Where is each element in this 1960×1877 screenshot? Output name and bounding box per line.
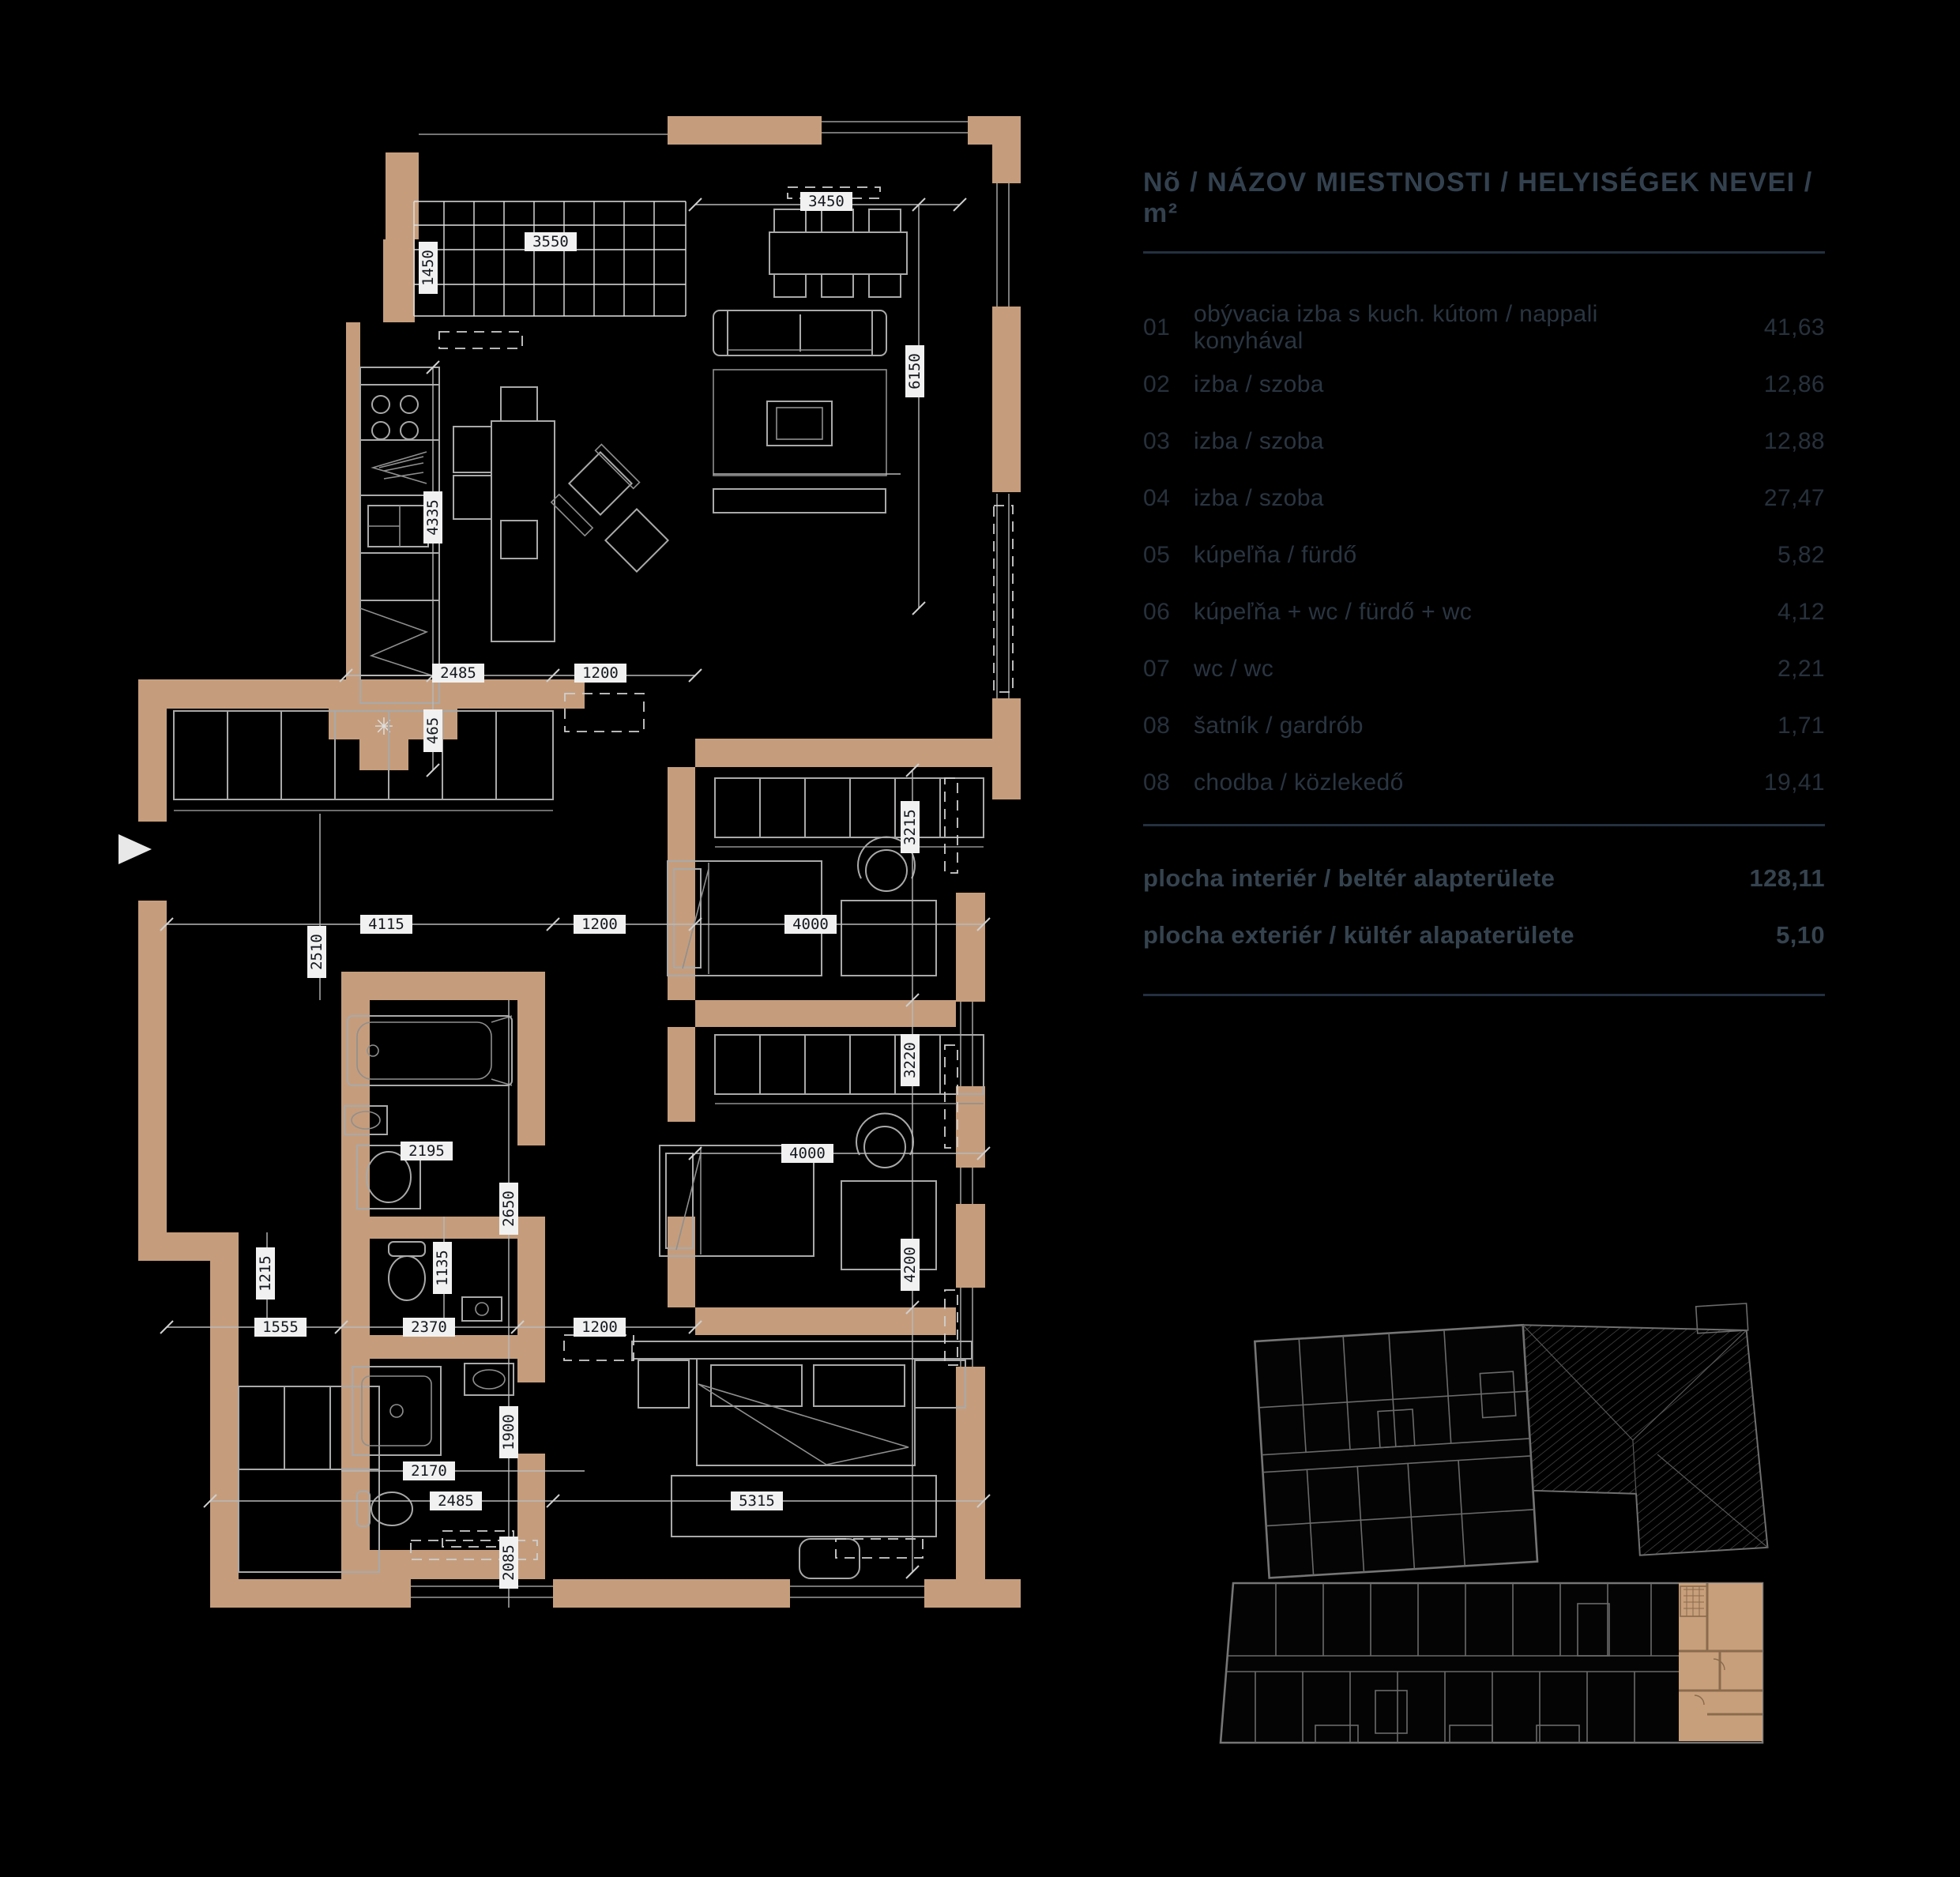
dimension-label: 3550 [532, 233, 569, 250]
dimension-label: 2485 [440, 664, 476, 682]
bathtub-icon [348, 1016, 512, 1085]
dimension-label: 1200 [582, 664, 619, 682]
room-row: 01 obývacia izba s kuch. kútom / nappali… [1143, 299, 1825, 356]
bedroom2 [668, 778, 984, 976]
room-number: 04 [1143, 485, 1194, 512]
room-row: 03 izba / szoba 12,88 [1143, 413, 1825, 470]
room-list-panel: Nõ / NÁZOV MIESTNOSTI / HELYISÉGEK NEVEI… [1143, 167, 1825, 996]
dimension-label: 6150 [906, 353, 924, 389]
entrance-arrow-icon [119, 834, 152, 864]
total-row: plocha exteriér / kültér alapaterülete 5… [1143, 907, 1825, 964]
dimension-label: 2650 [500, 1191, 517, 1227]
french-window [945, 778, 957, 873]
room-row: 06 kúpeľňa + wc / fürdő + wc 4,12 [1143, 584, 1825, 641]
room-name: kúpeľňa + wc / fürdő + wc [1194, 599, 1714, 626]
totals: plocha interiér / beltér alapterülete 12… [1143, 826, 1825, 994]
room-row: 02 izba / szoba 12,86 [1143, 356, 1825, 413]
room-row: 07 wc / wc 2,21 [1143, 641, 1825, 698]
room-row: 08 chodba / közlekedő 19,41 [1143, 754, 1825, 811]
room-row: 05 kúpeľňa / fürdő 5,82 [1143, 527, 1825, 584]
room-number: 06 [1143, 599, 1194, 626]
divider [1143, 994, 1825, 996]
cooktop-icon [372, 396, 418, 439]
room-number: 02 [1143, 371, 1194, 398]
room-area: 4,12 [1714, 599, 1825, 626]
dimension-label: 2510 [308, 934, 325, 970]
room-number: 07 [1143, 656, 1194, 683]
dimension-label: 1555 [262, 1318, 299, 1336]
room-name: izba / szoba [1194, 428, 1714, 455]
panel-title: Nõ / NÁZOV MIESTNOSTI / HELYISÉGEK NEVEI… [1143, 167, 1825, 251]
total-row: plocha interiér / beltér alapterülete 12… [1143, 850, 1825, 907]
desk [841, 901, 936, 976]
total-value: 5,10 [1699, 921, 1825, 950]
room-number: 03 [1143, 428, 1194, 455]
door-threshold [564, 1335, 634, 1360]
room-area: 1,71 [1714, 713, 1825, 739]
desk [672, 1476, 936, 1537]
dimension-label: 4335 [424, 499, 442, 536]
total-label: plocha exteriér / kültér alapaterülete [1143, 921, 1699, 950]
terrace-grid [414, 201, 686, 316]
room-area: 27,47 [1714, 485, 1825, 512]
room-row: 04 izba / szoba 27,47 [1143, 470, 1825, 527]
mini-plan-upper [1255, 1303, 1768, 1578]
room-area: 41,63 [1714, 314, 1825, 341]
desk-chair [856, 1114, 913, 1168]
bathroom6 [352, 1364, 514, 1547]
room-number: 05 [1143, 542, 1194, 569]
room-name: izba / szoba [1194, 485, 1714, 512]
highlighted-unit [1679, 1583, 1762, 1741]
room-number: 08 [1143, 713, 1194, 739]
dimension-label: 3215 [901, 809, 919, 845]
dimension-label: 4115 [368, 916, 404, 933]
dining-table [769, 209, 907, 297]
dimension-label: 1200 [581, 1318, 618, 1336]
room-rows: 01 obývacia izba s kuch. kútom / nappali… [1143, 254, 1825, 824]
total-label: plocha interiér / beltér alapterülete [1143, 864, 1699, 893]
room-area: 2,21 [1714, 656, 1825, 683]
room-name: izba / szoba [1194, 371, 1714, 398]
dimension-label: 1900 [500, 1414, 517, 1450]
armchairs [551, 445, 668, 572]
room-number: 08 [1143, 769, 1194, 796]
dimension-label: 465 [424, 717, 442, 744]
toilet-icon [389, 1242, 425, 1300]
dimension-label: 3220 [901, 1042, 919, 1078]
sofa [713, 310, 886, 355]
double-bed [697, 1359, 915, 1465]
fridge-icon [360, 608, 439, 678]
dimension-label: 4200 [901, 1247, 919, 1283]
dimension-label: 1450 [419, 250, 437, 286]
sink-icon [465, 1364, 514, 1395]
tv-sideboard [713, 489, 886, 513]
sink-icon [368, 506, 428, 547]
dimension-label: 2170 [411, 1462, 447, 1480]
dimension-label: 2370 [411, 1318, 447, 1336]
room-number: 01 [1143, 314, 1194, 341]
room-name: šatník / gardrób [1194, 713, 1714, 739]
room-area: 12,86 [1714, 371, 1825, 398]
extractor-icon [373, 452, 427, 483]
room-area: 12,88 [1714, 428, 1825, 455]
room-area: 5,82 [1714, 542, 1825, 569]
room-name: chodba / közlekedő [1194, 769, 1714, 796]
dimension-label: 4000 [792, 916, 829, 933]
desk-chair [799, 1539, 860, 1578]
rug-coffee-table [713, 370, 886, 476]
room-area: 19,41 [1714, 769, 1825, 796]
dimension-label: 1135 [434, 1250, 451, 1286]
dimension-label: 3450 [808, 193, 845, 210]
island-table [453, 387, 555, 641]
radiator [439, 332, 522, 348]
dimension-label: 2085 [500, 1544, 517, 1581]
dimension-label: 4000 [789, 1145, 826, 1162]
room-row: 08 šatník / gardrób 1,71 [1143, 698, 1825, 754]
french-window [945, 1045, 957, 1148]
room-name: wc / wc [1194, 656, 1714, 683]
total-value: 128,11 [1699, 864, 1825, 893]
balcony-door [836, 1539, 923, 1558]
small-sink-icon [462, 1297, 502, 1321]
dimension-label: 2195 [408, 1142, 445, 1160]
mini-plan-lower [1221, 1583, 1762, 1743]
snowflake-icon: ✳ [374, 714, 393, 740]
dimension-label: 5315 [739, 1492, 775, 1510]
walls [138, 116, 1021, 1608]
room-name: obývacia izba s kuch. kútom / nappali ko… [1194, 301, 1714, 355]
room-name: kúpeľňa / fürdő [1194, 542, 1714, 569]
dimension-label: 1200 [581, 916, 618, 933]
dimension-label: 1215 [257, 1255, 274, 1292]
dimension-label: 2485 [438, 1492, 474, 1510]
desk [841, 1181, 936, 1270]
